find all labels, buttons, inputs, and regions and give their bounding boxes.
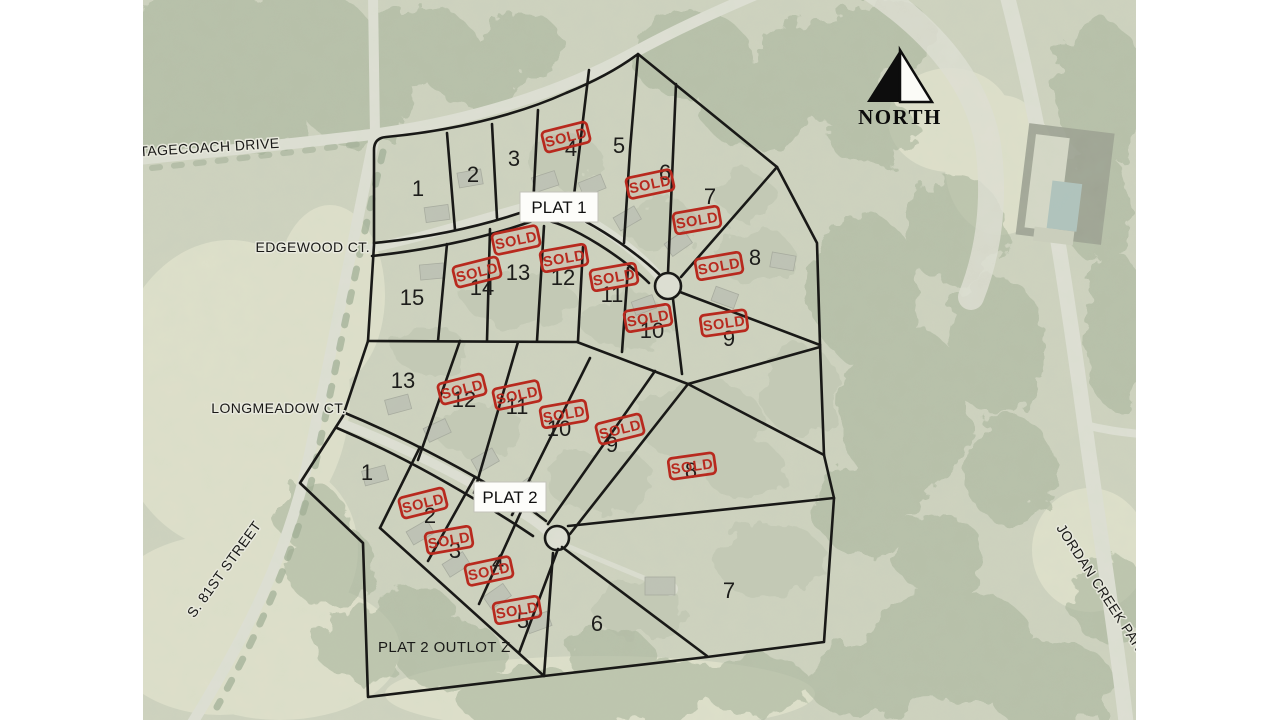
lot-number: 15: [400, 285, 424, 310]
lot-number: 13: [506, 260, 530, 285]
street-label-longmeadow: LONGMEADOW CT.: [211, 400, 346, 416]
lot-number: 13: [391, 368, 415, 393]
north-label: NORTH: [858, 105, 942, 129]
outlot-label: PLAT 2 OUTLOT Z: [378, 639, 511, 656]
lot-number: 8: [749, 245, 761, 270]
plat1-label: PLAT 1: [531, 198, 586, 217]
lot-number: 6: [591, 611, 603, 636]
plat-map-page: 1 2 3 4 5 6 7 8 9 10 11 12 13 14 15 1 2 …: [0, 0, 1280, 720]
lot-number: 5: [613, 133, 625, 158]
lot-number: 1: [361, 460, 373, 485]
street-label-edgewood: EDGEWOOD CT.: [256, 239, 370, 255]
lot-number: 3: [508, 146, 520, 171]
sold-stamp: SOLD: [700, 309, 748, 336]
aerial-photo: 1 2 3 4 5 6 7 8 9 10 11 12 13 14 15 1 2 …: [100, 0, 1165, 720]
plat1-label-box: PLAT 1: [520, 192, 598, 222]
sold-stamp: SOLD: [668, 452, 716, 479]
plat-map-image: 1 2 3 4 5 6 7 8 9 10 11 12 13 14 15 1 2 …: [0, 0, 1280, 720]
plat2-label-box: PLAT 2: [474, 482, 546, 512]
haze-overlay: [143, 0, 1136, 720]
plat2-label: PLAT 2: [482, 488, 537, 507]
lot-number: 2: [467, 162, 479, 187]
lot-number: 7: [723, 578, 735, 603]
lot-number: 1: [412, 176, 424, 201]
